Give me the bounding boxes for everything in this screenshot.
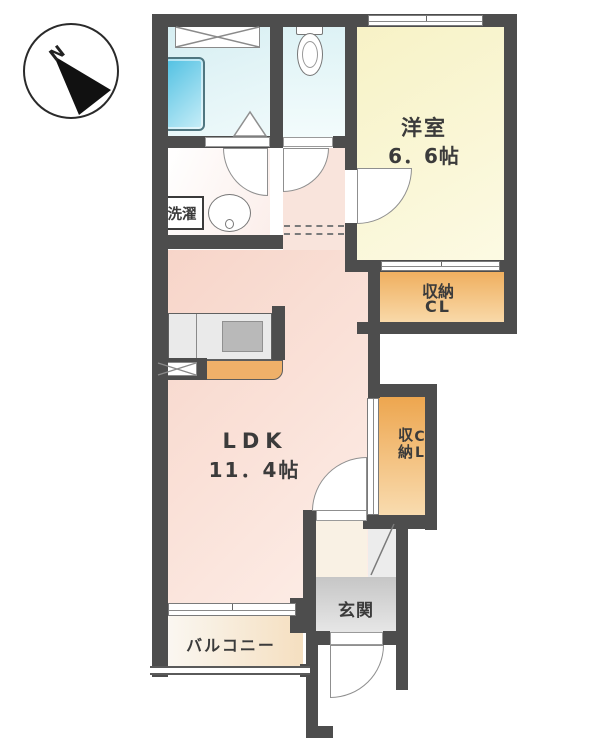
closet-upper-label-line2: CL: [406, 297, 470, 316]
folding-door-icon: [234, 112, 266, 136]
floor-plan: 洋室 6．6帖 LDK 11．4帖 収納 CL 収納 CL 洗濯 玄関 バルコニ…: [0, 0, 616, 751]
western-room-size: 6．6帖: [360, 140, 488, 169]
balcony-label: バルコニー: [155, 632, 307, 656]
compass-north-icon: N: [18, 18, 122, 122]
ldk-label: LDK: [195, 429, 315, 453]
slope-line: [371, 524, 394, 575]
laundry-label: 洗濯: [161, 203, 203, 224]
cross-hatch-icon: [176, 27, 259, 47]
western-room-label: 洋室: [374, 112, 474, 142]
closet-side-label-col1: 収納: [397, 427, 414, 461]
closet-side-label-col2: CL: [413, 430, 426, 461]
cross-hatch-icon: [158, 363, 196, 375]
ldk-size: 11．4帖: [172, 454, 337, 483]
entrance-label: 玄関: [316, 596, 396, 621]
